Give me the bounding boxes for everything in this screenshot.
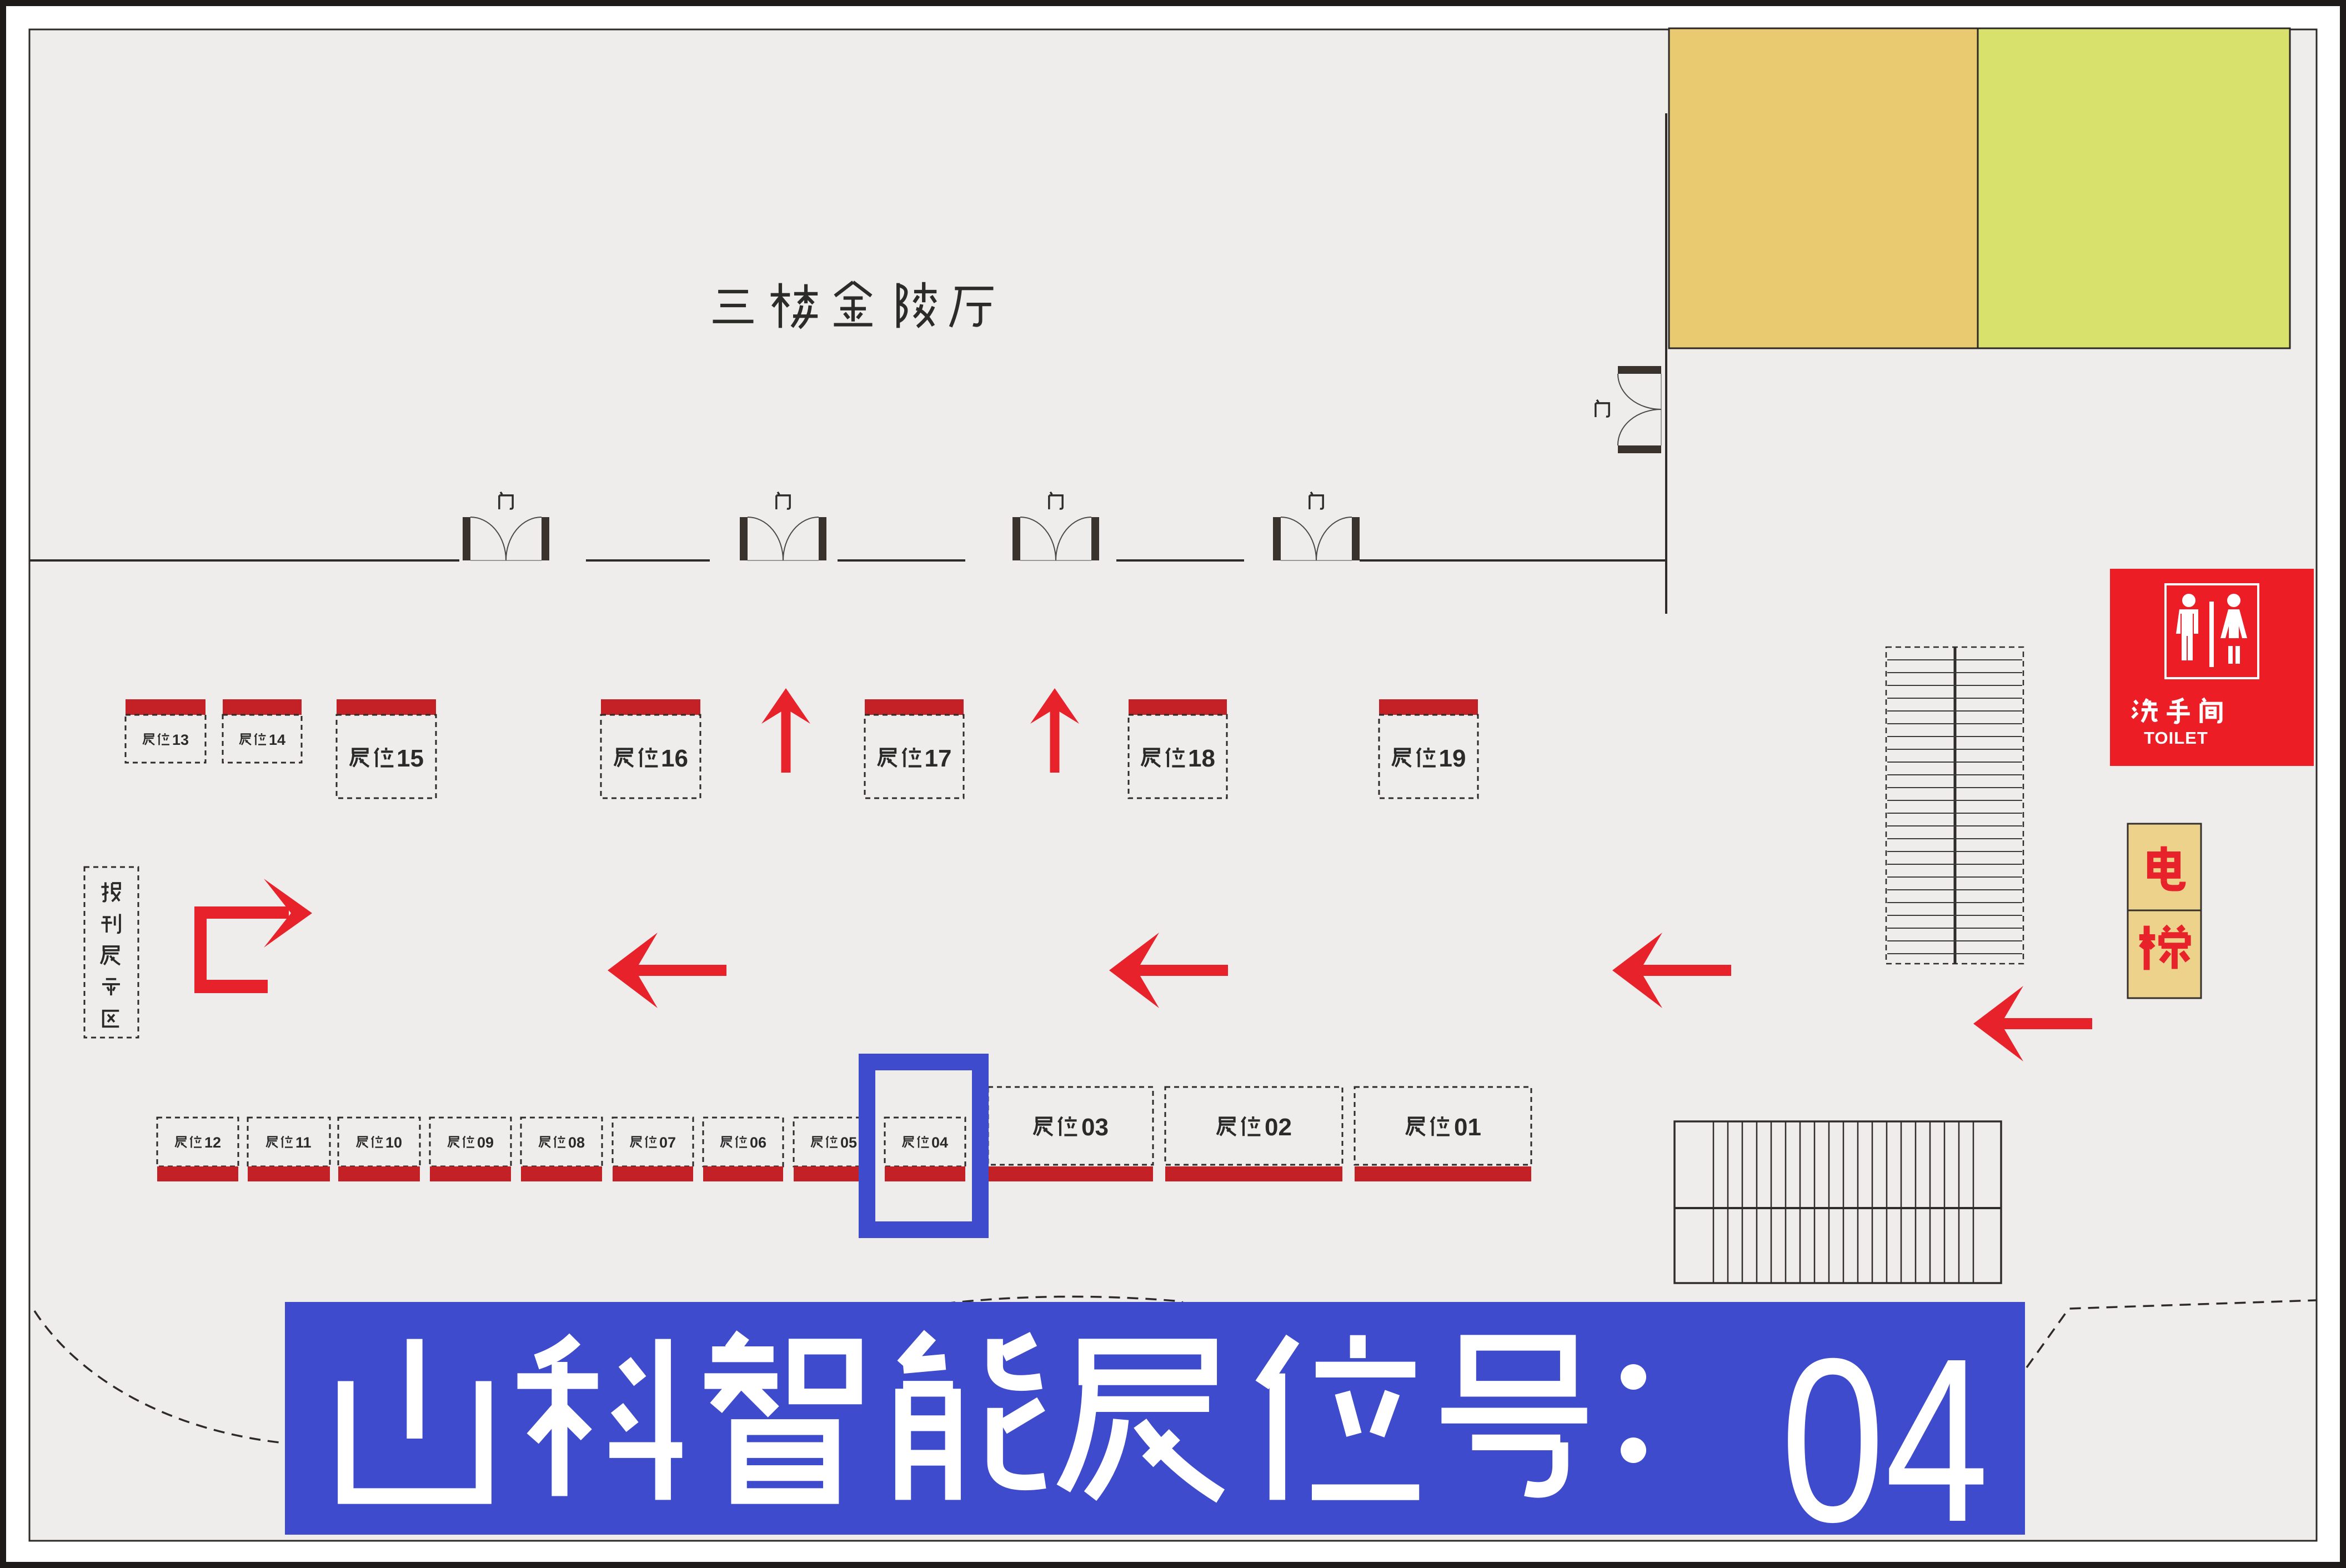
svg-text:09: 09	[477, 1134, 494, 1151]
svg-text:04: 04	[1781, 1310, 1989, 1568]
svg-text:19: 19	[1439, 745, 1466, 772]
svg-text:03: 03	[1081, 1114, 1109, 1141]
svg-text:02: 02	[1265, 1114, 1292, 1141]
svg-text:04: 04	[931, 1134, 948, 1151]
svg-text:17: 17	[925, 745, 952, 772]
svg-text:05: 05	[840, 1134, 857, 1151]
svg-text:01: 01	[1454, 1114, 1481, 1141]
svg-text:12: 12	[204, 1134, 221, 1151]
svg-text:10: 10	[385, 1134, 402, 1151]
svg-text:16: 16	[661, 745, 688, 772]
svg-text:07: 07	[659, 1134, 676, 1151]
svg-text:08: 08	[568, 1134, 585, 1151]
svg-text:TOILET: TOILET	[2144, 728, 2208, 748]
svg-text:15: 15	[397, 745, 424, 772]
svg-text:18: 18	[1188, 745, 1215, 772]
svg-text:14: 14	[269, 732, 285, 748]
svg-text:13: 13	[172, 732, 189, 748]
svg-text:06: 06	[750, 1134, 766, 1151]
svg-text:11: 11	[295, 1134, 312, 1151]
